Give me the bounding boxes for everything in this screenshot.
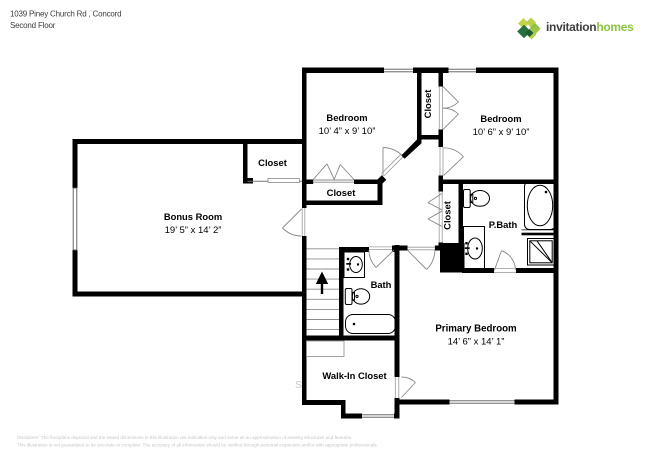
svg-text:1039 Piney Church Rd , Concord: 1039 Piney Church Rd , Concord [10, 10, 121, 19]
svg-text:10’ 4” x 9’ 10”: 10’ 4” x 9’ 10” [319, 126, 376, 137]
svg-text:Disclaimer: The floorplans dep: Disclaimer: The floorplans depicted and … [17, 435, 352, 440]
svg-text:Closet: Closet [258, 157, 287, 168]
svg-text:14’ 6” x 14’ 1”: 14’ 6” x 14’ 1” [448, 337, 505, 348]
svg-text:Bedroom: Bedroom [326, 112, 367, 123]
svg-text:Bath: Bath [371, 279, 392, 290]
svg-text:Walk-In Closet: Walk-In Closet [322, 370, 386, 381]
svg-text:Closet: Closet [442, 201, 453, 230]
svg-text:10’ 6” x 9’ 10”: 10’ 6” x 9’ 10” [473, 127, 530, 138]
svg-text:invitationhomes: invitationhomes [546, 20, 634, 34]
svg-text:Primary Bedroom: Primary Bedroom [435, 324, 517, 335]
svg-text:This illustration is not guara: This illustration is not guaranteed to b… [17, 443, 378, 448]
svg-text:Closet: Closet [422, 90, 433, 119]
svg-text:Bonus Room: Bonus Room [164, 211, 222, 222]
svg-text:S: S [295, 379, 302, 391]
svg-text:Bedroom: Bedroom [480, 113, 521, 124]
svg-text:19’ 5” x 14’ 2”: 19’ 5” x 14’ 2” [165, 225, 222, 236]
svg-text:Closet: Closet [327, 187, 356, 198]
svg-text:Second Floor: Second Floor [10, 21, 56, 30]
svg-text:P.Bath: P.Bath [489, 219, 518, 230]
